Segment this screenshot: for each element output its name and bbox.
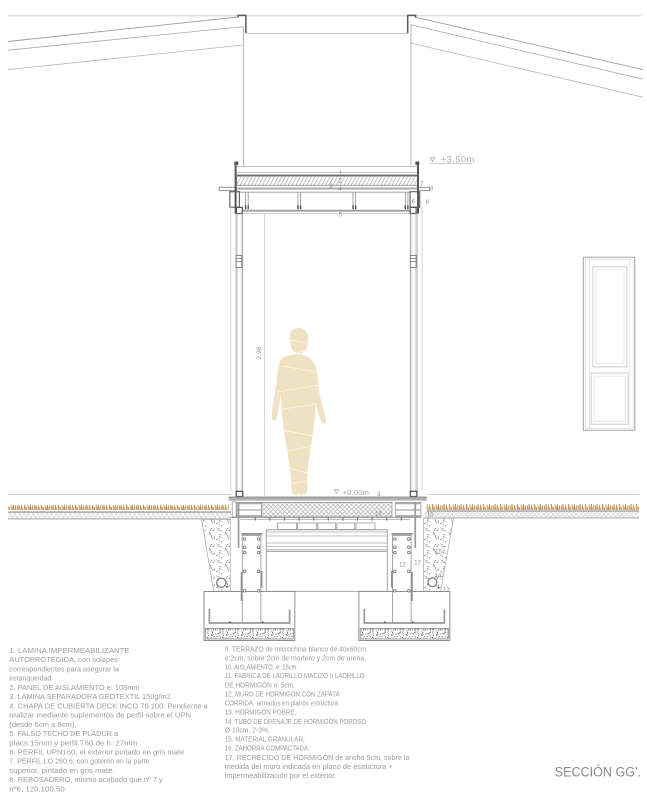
svg-text:realizar mediante suplementos: realizar mediante suplementos de perfil … [9,713,191,720]
svg-text:2. PANEL DE AISLAMIENTO e: 105: 2. PANEL DE AISLAMIENTO e: 105mm [9,685,139,692]
svg-text:impermeabilización por el exte: impermeabilización por el exterior. [225,773,337,780]
svg-text:7. PERFIL LO 280.6, con goteró: 7. PERFIL LO 280.6, con goterón en la pa… [9,759,149,766]
svg-text:estanqueidad.: estanqueidad. [9,676,53,683]
svg-text:9. TERRAZO de microchina blanc: 9. TERRAZO de microchina blanco de 40x60… [225,646,368,653]
svg-text:+3.50m: +3.50m [441,153,475,164]
svg-text:14. TUBO DE DRENAJE DE HORMIGÓ: 14. TUBO DE DRENAJE DE HORMIGÓN POROSO [225,717,367,726]
svg-text:6. PERFIL UPN160, el exterior: 6. PERFIL UPN160, el exterior pintado en… [9,750,184,757]
svg-text:11. FABRICA DE LADRILLO MACIZO: 11. FABRICA DE LADRILLO MACIZO o LADRILL… [225,673,365,680]
svg-text:8. REBOSADERO, mismo acabado q: 8. REBOSADERO, mismo acabado que nº 7 y [9,777,163,784]
svg-text:superior, pintado en gris mate: superior, pintado en gris mate. [9,768,114,775]
svg-text:2.98: 2.98 [256,346,263,359]
svg-text:SECCIÓN GG'.: SECCIÓN GG'. [555,764,641,779]
svg-text:10. AISLAMIENTO, e: 16cm.: 10. AISLAMIENTO, e: 16cm. [225,664,298,671]
svg-text:CORRIDA, armados en planos est: CORRIDA, armados en planos estructura [225,701,338,708]
svg-text:12: 12 [399,563,406,569]
svg-text:+0.00m: +0.00m [343,488,369,497]
svg-text:medida del muro indicada en pl: medida del muro indicada en plano de est… [225,764,393,771]
svg-text:14: 14 [435,574,442,580]
svg-text:DE HORMIGÓN e: 5cm.: DE HORMIGÓN e: 5cm. [225,681,295,690]
svg-text:3. LAMINA SEPARADORA GEOTEXTIL: 3. LAMINA SEPARADORA GEOTEXTIL 150g/m2. [9,694,173,701]
svg-text:5. FALSO TECHO DE PLADUR a: 5. FALSO TECHO DE PLADUR a [9,731,118,738]
svg-text:e:2cm, sobre 2cm de mortero y: e:2cm, sobre 2cm de mortero y 2cm de are… [225,655,367,662]
svg-text:nº6, 120.100.50: nº6, 120.100.50 [9,786,65,793]
svg-text:Ø 10cm, 2-3%.: Ø 10cm, 2-3%. [225,728,270,735]
svg-text:(desde 6cm a 8cm).: (desde 6cm a 8cm). [9,722,76,729]
svg-text:13. HORMIGÓN POBRE.: 13. HORMIGÓN POBRE. [225,708,297,717]
svg-text:10: 10 [375,512,382,518]
svg-text:15. MATERIAL GRANULAR,: 15. MATERIAL GRANULAR, [225,737,305,744]
svg-text:placs:15mm y perfil T60 de h:: placs:15mm y perfil T60 de h: 27mm. [9,740,139,747]
svg-text:17. RECRECIDO DE HORMIGÓN de a: 17. RECRECIDO DE HORMIGÓN de ancho 5cm, … [225,753,410,762]
svg-text:13: 13 [443,588,450,594]
svg-text:AUTOPROTEGIDA, con solapes: AUTOPROTEGIDA, con solapes [9,657,118,664]
svg-text:correspondientes para asegurar: correspondientes para asegurar la [9,666,119,673]
svg-text:16. ZAHORRA COMPACTADA.: 16. ZAHORRA COMPACTADA. [225,746,310,753]
svg-text:12. MURO DE HORMIGÓN CON ZAPAT: 12. MURO DE HORMIGÓN CON ZAPATA [225,690,340,699]
svg-text:17: 17 [414,561,421,567]
svg-text:1. LAMINA IMPERMEABILIZANTE: 1. LAMINA IMPERMEABILIZANTE [9,648,130,655]
svg-text:4. CHAPA DE CUBIERTA DECK INCO: 4. CHAPA DE CUBIERTA DECK INCO 70.100. P… [9,704,208,711]
svg-text:16: 16 [427,513,434,519]
svg-text:15: 15 [435,550,442,556]
